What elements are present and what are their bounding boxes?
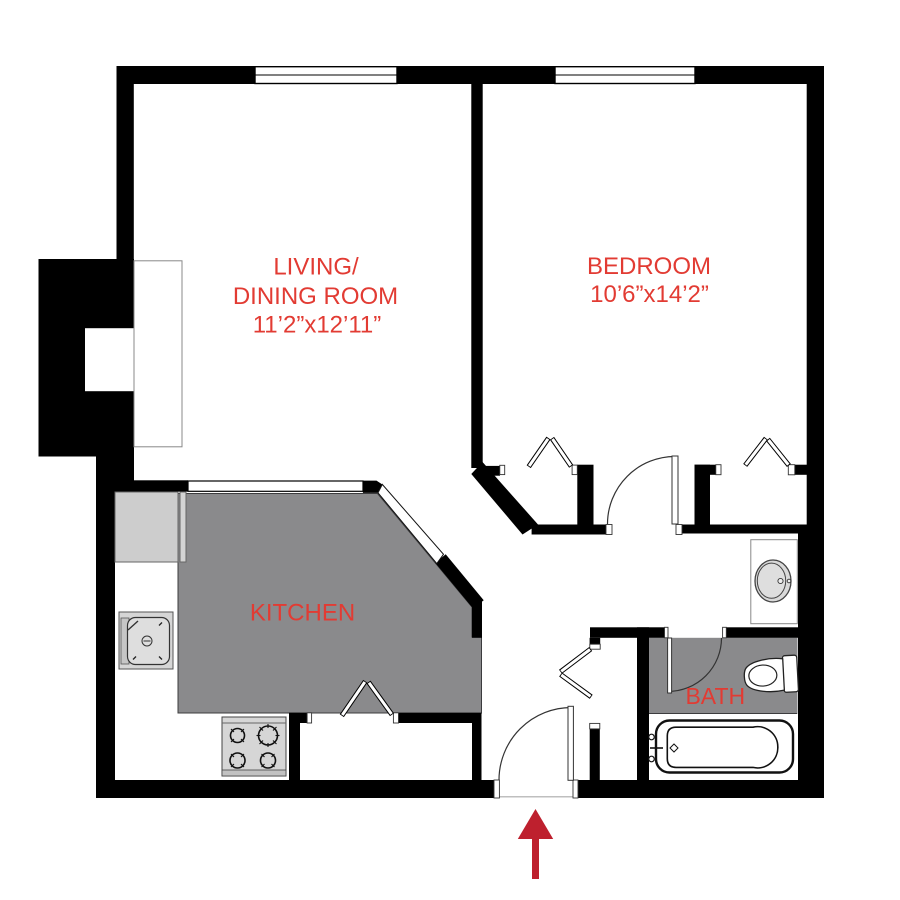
svg-text:10’6”x14’2”: 10’6”x14’2” (590, 281, 709, 308)
svg-text:BEDROOM: BEDROOM (587, 253, 711, 280)
svg-text:11’2”x12’11”: 11’2”x12’11” (253, 311, 382, 338)
svg-text:DINING ROOM: DINING ROOM (233, 283, 398, 310)
svg-text:LIVING/: LIVING/ (273, 254, 359, 281)
svg-text:KITCHEN: KITCHEN (250, 599, 355, 626)
svg-text:BATH: BATH (685, 683, 745, 709)
